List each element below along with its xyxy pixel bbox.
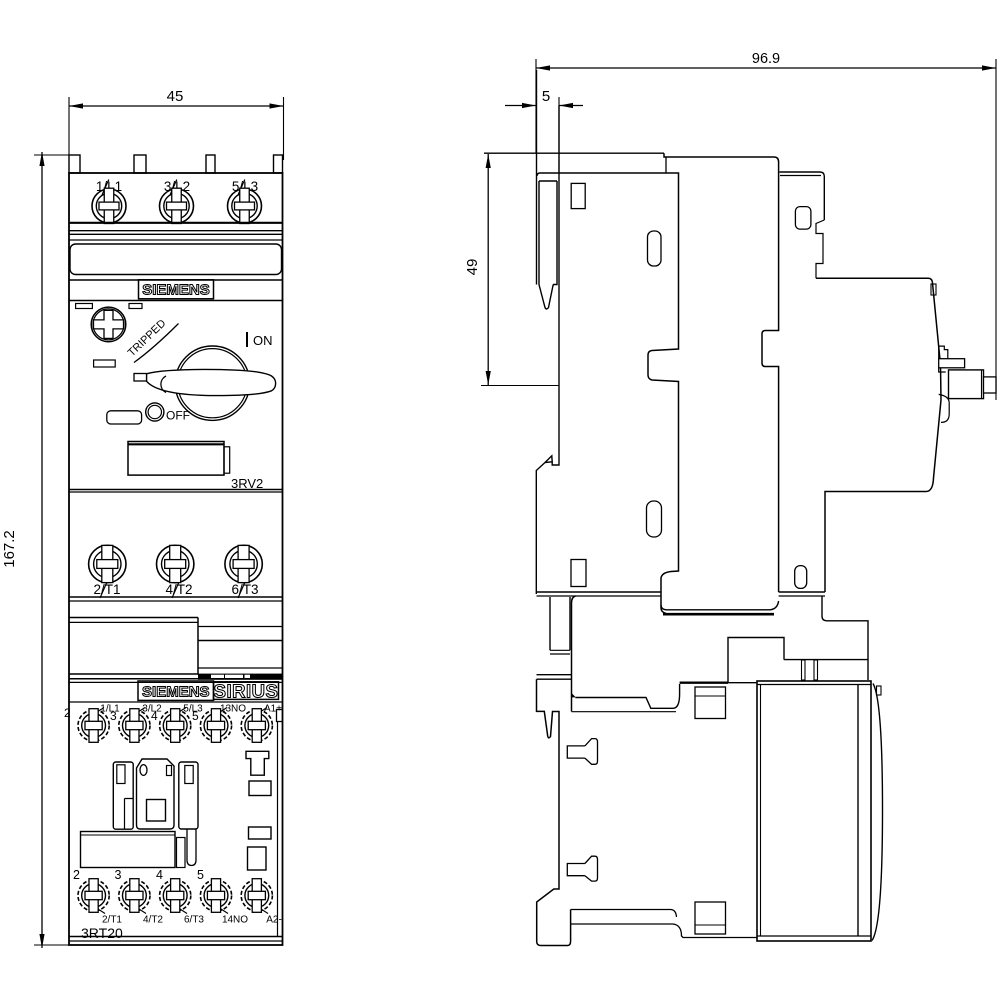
svg-text:3: 3 xyxy=(115,868,122,882)
svg-text:167.2: 167.2 xyxy=(1,530,18,568)
svg-text:96.9: 96.9 xyxy=(752,51,780,67)
svg-text:45: 45 xyxy=(167,88,184,105)
svg-text:4: 4 xyxy=(156,868,163,882)
svg-text:A2-: A2- xyxy=(266,915,282,926)
svg-text:14NO: 14NO xyxy=(222,915,248,926)
svg-text:49: 49 xyxy=(464,259,481,276)
svg-text:2: 2 xyxy=(64,706,71,720)
svg-text:2/T1: 2/T1 xyxy=(93,582,120,597)
svg-text:OFF: OFF xyxy=(166,409,190,423)
svg-text:3RT20: 3RT20 xyxy=(81,925,123,941)
svg-text:SIRIUS: SIRIUS xyxy=(214,680,279,701)
svg-text:5: 5 xyxy=(197,868,204,882)
svg-text:6/T3: 6/T3 xyxy=(231,582,258,597)
svg-text:4: 4 xyxy=(151,709,158,723)
svg-text:2/T1: 2/T1 xyxy=(102,915,122,926)
svg-text:4/T2: 4/T2 xyxy=(143,915,163,926)
svg-text:5: 5 xyxy=(192,709,199,723)
svg-text:2: 2 xyxy=(73,868,80,882)
svg-text:SIEMENS: SIEMENS xyxy=(142,683,210,700)
svg-text:SIEMENS: SIEMENS xyxy=(142,282,210,299)
svg-text:4/T2: 4/T2 xyxy=(165,582,192,597)
svg-text:ON: ON xyxy=(253,333,273,348)
svg-text:6/T3: 6/T3 xyxy=(184,915,204,926)
svg-text:5: 5 xyxy=(542,88,550,105)
svg-text:3: 3 xyxy=(110,709,117,723)
